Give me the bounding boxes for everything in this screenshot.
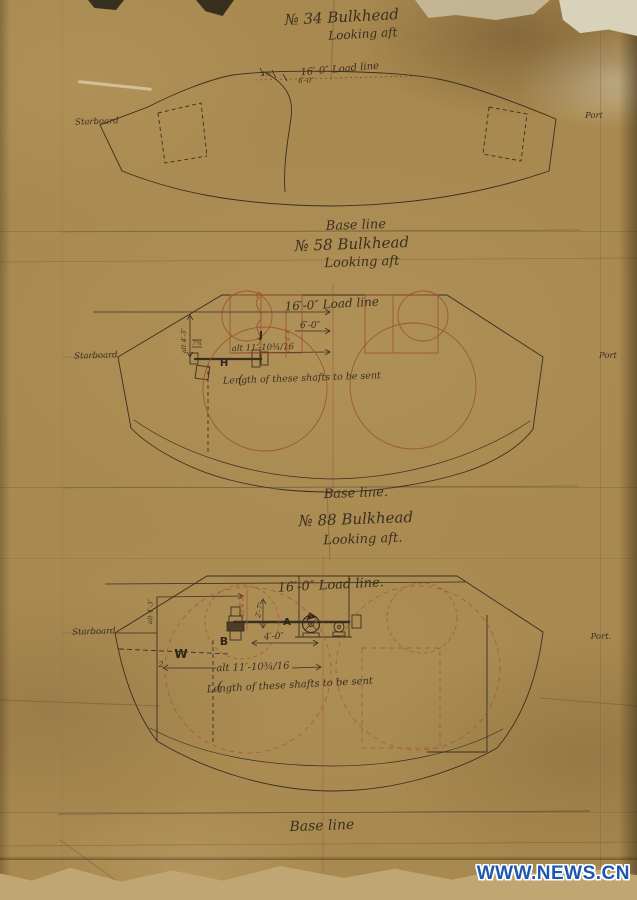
shaft-flange-right2-58 [261, 352, 268, 365]
triangle-marker-88 [307, 612, 317, 620]
bulkhead-58-labels: № 58 Bulkhead Looking aft 16′-0″ Load li… [74, 233, 618, 502]
small-circle-right-58 [398, 291, 448, 341]
paper-crease-lines [0, 0, 637, 898]
dim-alt43-88: alt 4′-3″ [146, 598, 155, 624]
dim-alt43-58: alt 4′-3″ [180, 327, 188, 353]
base-rule-58 [62, 486, 578, 488]
small-circle-left-58 [222, 291, 272, 341]
bulkhead-58-title: № 58 Bulkhead [293, 233, 409, 255]
load-line-label-34: 16′-0″ Load line [300, 61, 379, 79]
dashed-rect-right-88 [362, 648, 440, 748]
port-label-58: Port [598, 351, 618, 361]
bulkhead-34-drawing [60, 68, 580, 232]
bulkhead-88-construction [165, 556, 500, 886]
dashed-small-right-88 [387, 583, 457, 653]
bulkhead-88-labels: № 88 Bulkhead Looking aft. 16′-0″ Load l… [72, 508, 611, 835]
starboard-label-88: Starboard [72, 626, 116, 638]
base-line-label-58: Base line. [322, 485, 388, 502]
gear-pedestal-88 [303, 633, 319, 637]
left-hline-top-88 [157, 596, 243, 597]
dim-alt46-58: alt 4′-6″ [284, 326, 292, 352]
dim-2-88: 2 [157, 660, 163, 669]
right-box-88 [427, 615, 487, 752]
base-line-label-34: Base line [325, 217, 387, 234]
dim-small-a-34: 2½ [260, 70, 271, 78]
gear-small-hub-88 [338, 626, 341, 629]
bulkhead-58-construction [203, 284, 476, 497]
gear-spokes-88 [305, 618, 317, 630]
dashed-panel-left-34 [158, 103, 207, 163]
label-a-88: A [283, 617, 291, 628]
base-line-label-88: Base line [288, 817, 354, 835]
boiler-circle-right-58 [350, 323, 476, 449]
bulkhead-88-drawing [58, 576, 590, 814]
label-h-58: H [220, 358, 228, 369]
bulkhead-88-subtitle: Looking aft. [322, 531, 403, 549]
load-line-34 [255, 76, 420, 80]
bulkhead-34-labels: № 34 Bulkhead Looking aft 16′-0″ Load li… [75, 5, 604, 234]
dim-small-b-34: 6′-0″ [298, 77, 314, 85]
load-line-label-88: 16′-0″ Load line. [277, 575, 384, 596]
base-rule-88 [58, 811, 590, 814]
shaft-note-58: Length of these shafts to be sent [222, 370, 381, 387]
label-b-88: B [220, 635, 228, 648]
inner-bilge-88 [150, 728, 503, 766]
bulkhead-58-drawing [62, 295, 578, 492]
dashed-circle-right-88 [336, 586, 500, 750]
bulkhead-58-subtitle: Looking aft [323, 254, 400, 272]
news-watermark: WWW.NEWS.CN [477, 863, 630, 885]
port-label-34: Port [584, 111, 604, 121]
hull-outline-34 [100, 71, 556, 206]
shaft-note-88: Length of these shafts to be sent [206, 676, 375, 696]
alt11-dim-line2-88 [292, 667, 321, 668]
dim-6ft-58: 6′-0″ [300, 321, 321, 331]
dashed-panel-right-34 [483, 107, 527, 161]
blueprint-photo: № 34 Bulkhead Looking aft 16′-0″ Load li… [0, 0, 637, 900]
bulkhead-88-title: № 88 Bulkhead [297, 508, 413, 530]
bulkhead-34-subtitle: Looking aft [327, 25, 398, 43]
label-w-88: W [174, 647, 187, 661]
hull-outline-58 [118, 295, 543, 492]
bulkhead-drawing-svg: № 34 Bulkhead Looking aft 16′-0″ Load li… [0, 0, 637, 900]
flange-c-88 [227, 622, 244, 631]
gear-small-88 [334, 622, 344, 632]
inner-curve-34 [266, 73, 292, 192]
label-j-58: J [258, 330, 263, 341]
brace-88: ( [217, 679, 223, 695]
dim-alt11-88: alt 11′-10¾/16 [216, 661, 290, 675]
dim-alt46-88: alt 4′-6″ [238, 592, 246, 618]
dim-7q-58: 7¼ [192, 340, 202, 347]
port-label-88: Port. [590, 632, 612, 642]
starboard-label-34: Starboard [75, 116, 119, 128]
dim-2-7-88: 2′-7″ [254, 601, 265, 619]
dim-4ft-88: 4′-0″ [263, 632, 285, 643]
flange-d-88 [230, 631, 241, 640]
base-rule-34 [60, 230, 580, 232]
starboard-label-58: Starboard [74, 350, 118, 362]
coupling-88 [352, 615, 361, 628]
